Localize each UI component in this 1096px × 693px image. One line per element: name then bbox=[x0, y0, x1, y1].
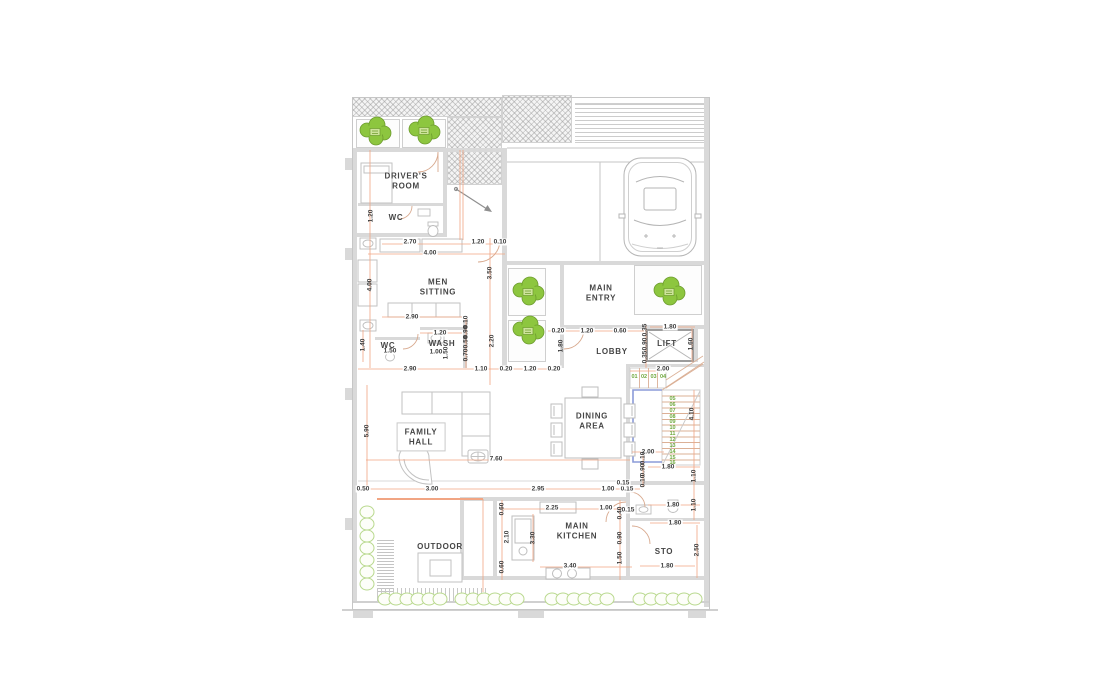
dimension-label-vertical: 2.20 bbox=[489, 334, 496, 349]
dimension-label: 1.00 bbox=[599, 505, 614, 512]
dimension-label: 1.20 bbox=[523, 366, 538, 373]
dimension-label: 1.00 bbox=[429, 349, 444, 356]
dimension-label-vertical: 1.80 bbox=[558, 339, 565, 354]
dimension-label-vertical: 0.60 bbox=[499, 502, 506, 517]
dimension-label: 0.60 bbox=[613, 328, 628, 335]
room-label: LOBBY bbox=[596, 347, 628, 357]
dimension-label: 2.70 bbox=[403, 239, 418, 246]
dimension-label-vertical: 2.50 bbox=[694, 543, 701, 558]
dimension-label-vertical: 0.35 bbox=[642, 323, 649, 338]
dimension-label-vertical: 0.60 bbox=[499, 560, 506, 575]
dimension-label: 3.00 bbox=[425, 486, 440, 493]
floor-plan: DRIVER'S ROOMWCMEN SITTINGWASHWCMAIN ENT… bbox=[0, 0, 1096, 693]
dimension-label: 0.50 bbox=[356, 486, 371, 493]
dimension-label-vertical: 0.90 bbox=[617, 531, 624, 546]
dimension-label: 1.00 bbox=[601, 486, 616, 493]
dimension-label-vertical: 1.60 bbox=[688, 337, 695, 352]
dimension-label: 2.95 bbox=[531, 486, 546, 493]
dimension-label-vertical: 1.40 bbox=[360, 338, 367, 353]
dimension-label: 1.80 bbox=[660, 563, 675, 570]
room-label: DINING AREA bbox=[576, 411, 608, 430]
dimension-label-vertical: 1.50 bbox=[617, 551, 624, 566]
dimension-label-vertical: 0.35 bbox=[642, 350, 649, 365]
dimension-label: 2.90 bbox=[405, 314, 420, 321]
dimension-label: 1.80 bbox=[663, 324, 678, 331]
dimension-label: 1.80 bbox=[666, 502, 681, 509]
dimension-label-vertical: 2.10 bbox=[504, 530, 511, 545]
dimension-label-vertical: 3.30 bbox=[530, 531, 537, 546]
stair-step-number: 03 bbox=[650, 374, 656, 380]
dimension-label-vertical: 4.10 bbox=[689, 407, 696, 422]
dimension-label-vertical: 4.00 bbox=[367, 278, 374, 293]
dimension-label-vertical: 5.90 bbox=[364, 424, 371, 439]
room-label: FAMILY HALL bbox=[397, 422, 446, 451]
dimension-label: 0.20 bbox=[547, 366, 562, 373]
dimension-label: 1.10 bbox=[474, 366, 489, 373]
stair-step-number: 16 bbox=[669, 460, 675, 466]
dimension-label: 0.20 bbox=[551, 328, 566, 335]
room-label: MAIN ENTRY bbox=[586, 283, 616, 302]
dimension-label: 0.15 bbox=[620, 486, 635, 493]
room-label: MAIN KITCHEN bbox=[557, 521, 597, 540]
room-label: LIFT bbox=[657, 339, 677, 349]
room-label: DRIVER'S ROOM bbox=[384, 171, 427, 190]
room-label: OUTDOOR bbox=[417, 542, 463, 552]
room-label: WASH bbox=[429, 339, 456, 349]
dimension-label: 1.20 bbox=[433, 330, 448, 337]
dimension-label: 2.90 bbox=[403, 366, 418, 373]
dimension-label-vertical: 1.10 bbox=[691, 498, 698, 513]
dimension-label: 1.20 bbox=[471, 239, 486, 246]
dimension-label: 7.60 bbox=[489, 456, 504, 463]
dimension-label: 4.00 bbox=[423, 250, 438, 257]
dimension-label: 2.25 bbox=[545, 505, 560, 512]
dimension-label-vertical: 0.10 bbox=[640, 474, 647, 489]
dimension-label: 1.20 bbox=[580, 328, 595, 335]
labels-layer: DRIVER'S ROOMWCMEN SITTINGWASHWCMAIN ENT… bbox=[0, 0, 1096, 693]
dimension-label: 2.00 bbox=[656, 366, 671, 373]
room-label: STO bbox=[655, 547, 673, 557]
stair-step-number: 02 bbox=[641, 374, 647, 380]
dimension-label-vertical: 1.20 bbox=[368, 209, 375, 224]
dimension-label: 0.20 bbox=[499, 366, 514, 373]
dimension-label-vertical: 0.40 bbox=[617, 506, 624, 521]
dimension-label: 3.40 bbox=[563, 563, 578, 570]
dimension-label: 0.15 bbox=[616, 480, 631, 487]
room-label: WC bbox=[381, 341, 396, 351]
dimension-label-vertical: 1.10 bbox=[691, 469, 698, 484]
room-label: MEN SITTING bbox=[420, 277, 456, 296]
dimension-label-vertical: 3.50 bbox=[487, 266, 494, 281]
dimension-label: 0.10 bbox=[493, 239, 508, 246]
dimension-label: 1.80 bbox=[668, 520, 683, 527]
room-label: WC bbox=[389, 213, 404, 223]
stair-step-number: 01 bbox=[631, 374, 637, 380]
stair-step-number: 04 bbox=[660, 374, 666, 380]
dimension-label-vertical: 0.70 bbox=[463, 348, 470, 363]
